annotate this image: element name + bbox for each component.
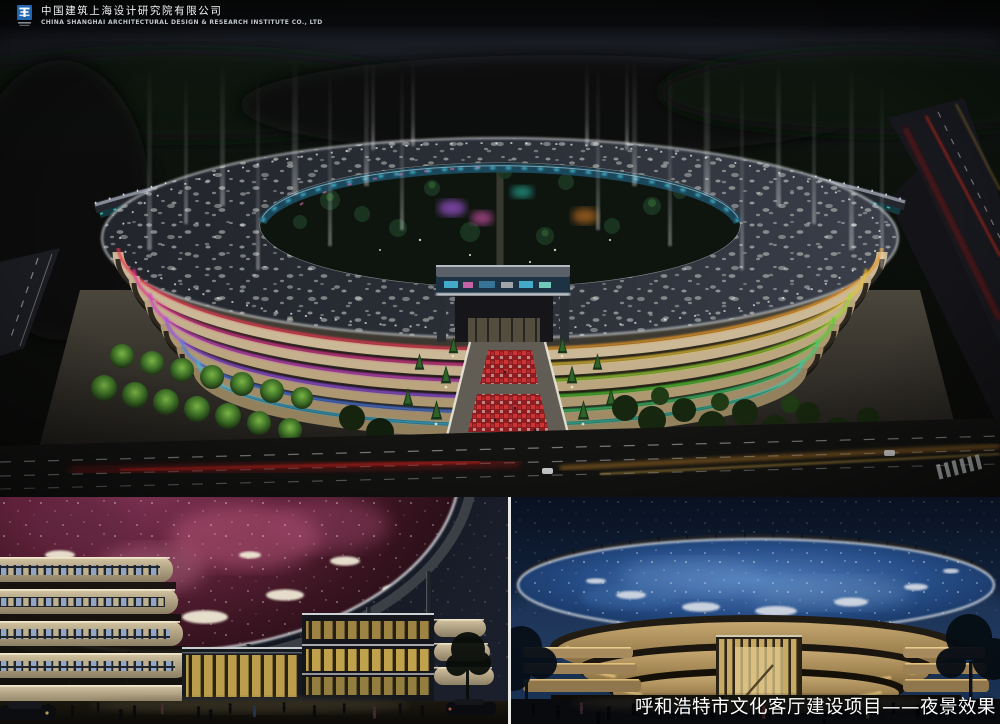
nebula-dome-scene [0, 497, 508, 724]
company-identity: 中国建筑上海设计研究院有限公司 CHINA SHANGHAI ARCHITECT… [17, 5, 323, 28]
starry-canopy-scene [511, 497, 1000, 724]
company-logo-icon [17, 5, 32, 28]
project-caption: 呼和浩特市文化客厅建设项目——夜景效果 [635, 693, 996, 719]
vignette [0, 0, 1000, 497]
center-pavilion [182, 647, 302, 703]
detail-render-nebula-dome [0, 497, 508, 724]
company-name-cn: 中国建筑上海设计研究院有限公司 [41, 5, 323, 17]
presentation-board: 中国建筑上海设计研究院有限公司 CHINA SHANGHAI ARCHITECT… [0, 0, 1000, 724]
main-render-scene [0, 0, 1000, 497]
left-building [0, 557, 193, 704]
ground-glow [90, 697, 410, 713]
detail-render-starry-canopy: 呼和浩特市文化客厅建设项目——夜景效果 [511, 497, 1000, 724]
company-name-en: CHINA SHANGHAI ARCHITECTURAL DESIGN & RE… [41, 19, 323, 26]
tone-layer [511, 497, 1000, 724]
main-aerial-render: 中国建筑上海设计研究院有限公司 CHINA SHANGHAI ARCHITECT… [0, 0, 1000, 497]
